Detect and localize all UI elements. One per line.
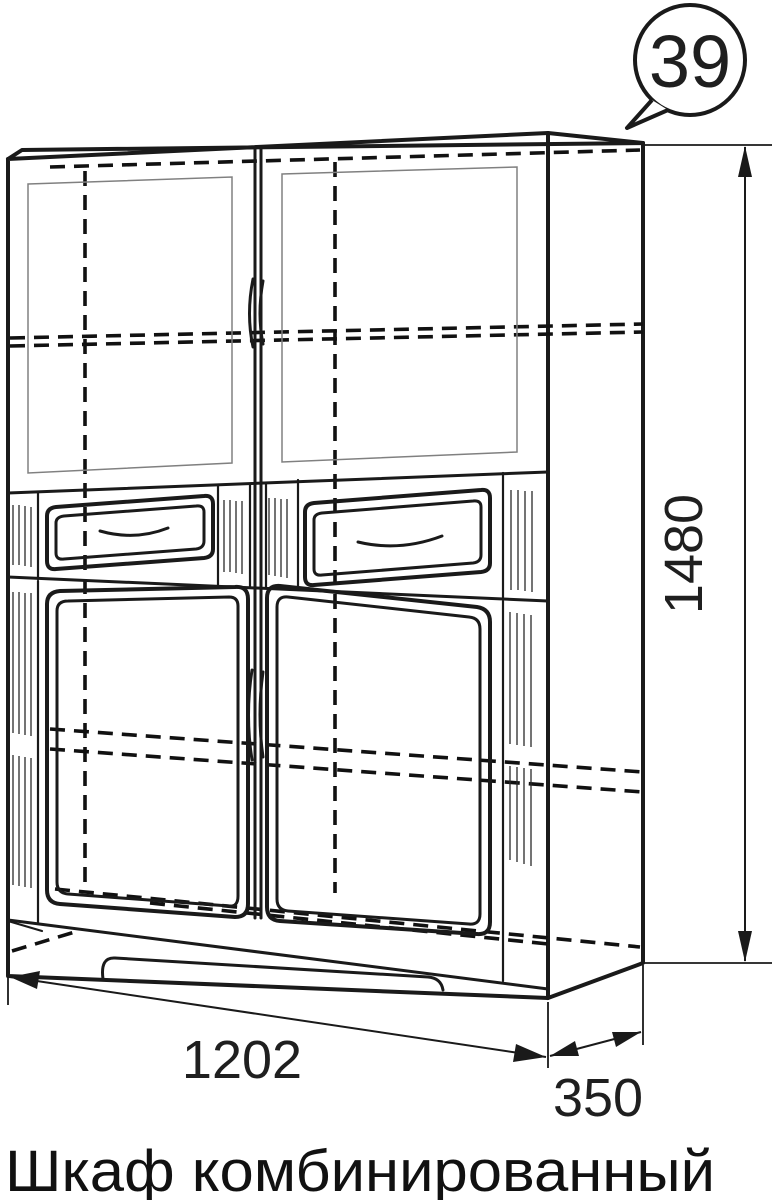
- lower-doors: [13, 581, 531, 981]
- lower-left-door-handle: [249, 670, 253, 760]
- left-glass-pane: [28, 177, 232, 473]
- drawer-band: [8, 472, 548, 601]
- drawing-caption: Шкаф комбинированный: [5, 1139, 715, 1200]
- left-drawer-handle: [100, 528, 168, 535]
- dimension-width: 1202: [8, 940, 548, 1090]
- technical-drawing-page: 1480 1202 350 39 Шкаф комбинированный: [0, 0, 777, 1200]
- pilaster-hatching: [13, 592, 531, 888]
- upper-right-door-handle: [260, 281, 263, 344]
- cabinet-line-drawing: 1480 1202 350 39 Шкаф комбинированный: [0, 0, 777, 1200]
- arrow-right-icon: [612, 1032, 641, 1047]
- height-dimension-label: 1480: [654, 494, 714, 614]
- width-dimension-label: 1202: [182, 1030, 302, 1090]
- arrow-left-icon: [550, 1041, 579, 1056]
- depth-dimension-label: 350: [553, 1068, 643, 1128]
- arrow-left-icon: [10, 971, 40, 989]
- left-drawer: [47, 496, 213, 569]
- right-drawer-handle: [358, 536, 442, 546]
- dimension-height: 1480: [643, 145, 772, 963]
- hidden-bottom-left-depth: [12, 931, 78, 951]
- top-right-corner-edge: [548, 133, 643, 143]
- right-glass-pane: [282, 167, 517, 462]
- right-drawer: [305, 490, 490, 585]
- lower-right-door: [267, 586, 490, 934]
- arrow-right-icon: [513, 1044, 546, 1062]
- callout-bubble: 39: [627, 5, 745, 128]
- arrow-down-icon: [738, 931, 752, 962]
- hidden-middle-shelf-front: [50, 729, 643, 772]
- hidden-middle-shelf-back: [50, 749, 643, 792]
- upper-left-door-handle: [250, 279, 254, 347]
- arrow-up-icon: [738, 146, 752, 177]
- callout-number: 39: [649, 20, 731, 103]
- lower-right-door-handle: [260, 672, 263, 757]
- dimension-depth: 350: [550, 965, 643, 1128]
